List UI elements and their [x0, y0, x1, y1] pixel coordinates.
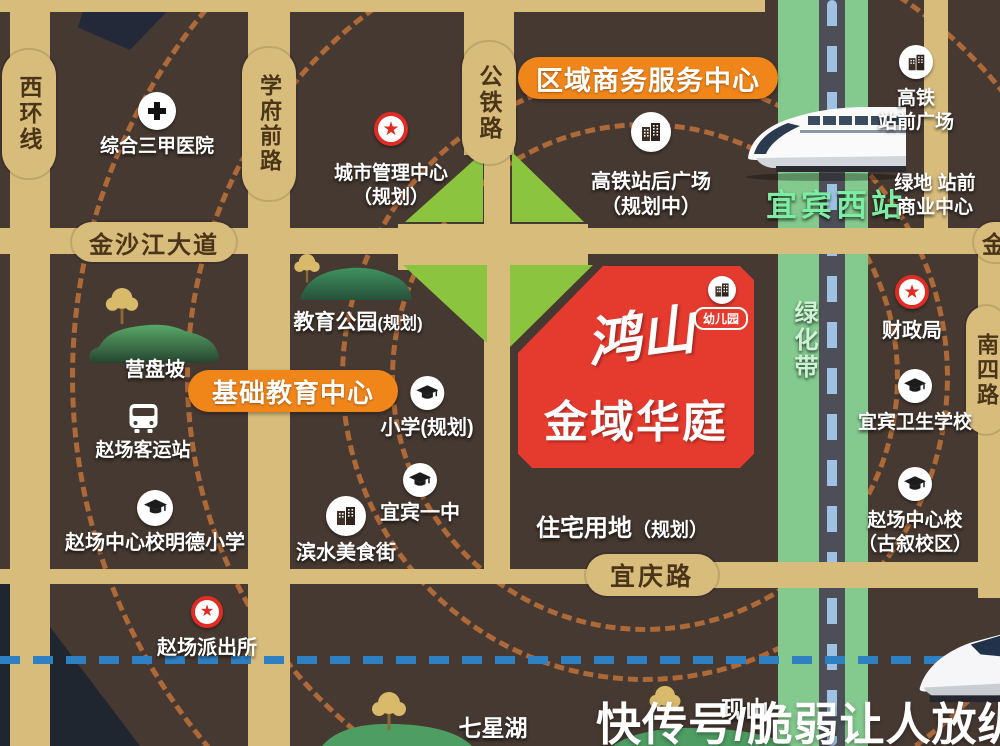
bus-station-label: 赵场客运站: [95, 439, 190, 463]
mingde-school-label: 赵场中心校明德小学: [65, 531, 245, 556]
edu-park-label: 教育公园: [293, 311, 377, 334]
buildings-icon: [631, 112, 671, 152]
city-management-label-1: 城市管理中心: [334, 162, 448, 186]
road-label-text: 西环线: [12, 75, 46, 153]
road-label-text: 公铁路: [472, 64, 506, 142]
road-label-text: 金沙江大道: [982, 225, 1000, 260]
landmark-finance-bureau: ★ 财政局: [882, 275, 942, 344]
yingpanpo-tree: [103, 286, 141, 328]
landmark-hospital: 综合三甲医院: [100, 92, 214, 159]
greenland-label-1: 绿地 站前: [894, 172, 975, 196]
landmark-front-plaza: 高铁 站前广场: [878, 45, 954, 135]
location-map: 西环线 学府前路 公铁路 南四路 金沙江大道 金沙江大道 宜庆路 鸿山 金域华庭…: [0, 0, 1000, 746]
green-belt-label: 绿化带: [786, 300, 821, 381]
residential-label: 住宅用地: [536, 515, 632, 542]
finance-bureau-label: 财政局: [882, 319, 942, 344]
project-name: 金域华庭: [518, 386, 754, 450]
rear-plaza-label-1: 高铁站后广场: [591, 170, 711, 195]
buildings-icon: [714, 282, 730, 298]
bus-icon: [126, 402, 160, 434]
project-brand: 鸿山: [555, 281, 724, 381]
buildings-icon: [326, 496, 366, 536]
yingpanpo-label: 营盘坡: [125, 358, 185, 383]
buildings-icon: [899, 45, 933, 79]
food-street-label: 滨水美食街: [296, 541, 396, 566]
badge-business-center: 区域商务服务中心: [518, 57, 778, 99]
guxu-label-2: （古叙校区）: [858, 533, 972, 557]
road-top-edge: [0, 0, 765, 12]
landmark-bus-station: 赵场客运站: [95, 402, 190, 463]
road-label-text: 宜庆路: [610, 557, 694, 593]
residential-note: （规划）: [632, 520, 708, 541]
grad-cap-icon: [410, 376, 444, 410]
landmark-greenland-center: 绿地 站前 商业中心: [894, 172, 975, 220]
landmark-health-school: 宜宾卫生学校: [858, 369, 972, 435]
star-icon: ★: [191, 596, 223, 628]
edu-park-tree: [292, 252, 322, 286]
badge-education-center: 基础教育中心: [188, 370, 398, 412]
road-label-xuefu-front: 学府前路: [242, 48, 296, 200]
front-plaza-label-1: 高铁: [897, 87, 935, 111]
road-label-gongtie: 公铁路: [462, 42, 516, 164]
watermark-text: 快传号/脆弱让人放纵: [596, 688, 1000, 746]
road-gongtie-lower: [484, 150, 510, 578]
grad-cap-icon: [898, 467, 932, 501]
blue-dashed-line: [0, 656, 1000, 664]
road-label-jinshajiang: 金沙江大道: [72, 222, 236, 262]
road-label-west-ring: 西环线: [2, 50, 56, 178]
star-icon: ★: [374, 112, 408, 146]
road-label-yiqing: 宜庆路: [586, 554, 718, 596]
grad-cap-icon: [898, 369, 932, 403]
landmark-mingde-school: 赵场中心校明德小学: [65, 490, 245, 556]
landmark-residential: 住宅用地（规划）: [536, 514, 708, 544]
qixing-lake-label: 七星湖: [459, 714, 528, 743]
primary-school-label: 小学(规划): [380, 416, 473, 441]
landmark-yingpanpo: 营盘坡: [125, 358, 185, 383]
star-icon: ★: [895, 275, 929, 309]
greenland-label-2: 商业中心: [897, 196, 973, 220]
grad-cap-icon: [137, 490, 173, 526]
lake-tree: [368, 690, 410, 734]
landmark-guxu-school: 赵场中心校 （古叙校区）: [858, 467, 972, 557]
city-management-label-2: （规划）: [353, 186, 429, 210]
road-jinshajiang-crossing: [398, 224, 588, 270]
edu-park-note: (规划): [377, 314, 422, 333]
police-station-label: 赵场派出所: [157, 636, 257, 661]
hospital-label: 综合三甲医院: [100, 135, 214, 159]
hospital-cross-icon: [138, 92, 176, 130]
health-school-label: 宜宾卫生学校: [858, 411, 972, 435]
west-station-label: 宜宾西站: [766, 180, 906, 225]
road-yiqing-west: [0, 569, 592, 584]
landmark-rear-plaza: 高铁站后广场 （规划中）: [591, 112, 711, 220]
kindergarten-building-icon: [708, 276, 736, 304]
guxu-label-1: 赵场中心校: [867, 509, 962, 533]
rear-plaza-label-2: （规划中）: [601, 195, 701, 220]
grad-cap-icon: [403, 463, 437, 497]
landmark-qixing-lake: 七星湖: [459, 714, 528, 743]
road-yiqing-east: [712, 562, 1000, 588]
landmark-edu-park: 教育公园(规划): [293, 310, 422, 336]
landmark-police-station: ★ 赵场派出所: [157, 596, 257, 661]
landmark-food-street: 滨水美食街: [296, 496, 396, 566]
kindergarten-badge: 幼儿园: [694, 307, 748, 330]
landmark-city-management: ★ 城市管理中心 （规划）: [334, 112, 448, 210]
road-label-text: 学府前路: [253, 74, 285, 174]
road-label-text: 金沙江大道: [89, 225, 219, 260]
front-plaza-label-2: 站前广场: [878, 111, 954, 135]
road-label-text: 南四路: [970, 333, 1000, 408]
